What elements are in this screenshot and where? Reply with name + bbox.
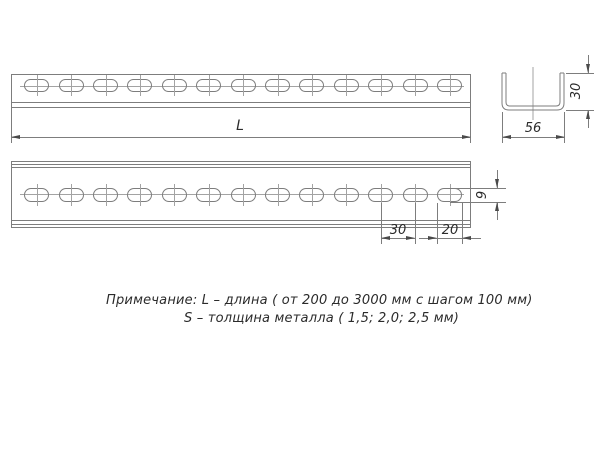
slot-pitch-label: 30 [386,224,410,238]
slot-vertical-centerline [140,75,141,96]
height-dim-arrow-top [586,64,590,73]
slot-vertical-centerline [312,184,313,206]
slot-vertical-centerline [381,75,382,96]
plan-view-bend-line-3 [12,220,470,221]
l-dim-label: L [228,119,252,133]
slot-vertical-centerline [450,75,451,96]
note-line1: Примечание: L – длина ( от 200 до 3000 м… [106,293,532,308]
slot-vertical-centerline [106,75,107,96]
slot-vertical-centerline [209,184,210,206]
slot-length-arrow-right [462,236,471,240]
slot-vertical-centerline [312,75,313,96]
slot-vertical-centerline [209,75,210,96]
width-dim-label: 56 [521,122,545,136]
slot-vertical-centerline [37,184,38,206]
width-dim-arrow-right [556,135,565,139]
l-dim-arrow-right [462,135,471,139]
side-view-bar [11,74,471,108]
plan-view-bend-line-2 [12,167,470,168]
plan-view-bar [11,161,471,228]
slot-vertical-centerline [174,184,175,206]
slot-vertical-centerline [140,184,141,206]
slot-vertical-centerline [243,75,244,96]
slot-vertical-centerline [37,75,38,96]
slot-vertical-centerline [71,75,72,96]
slot-vertical-centerline [174,75,175,96]
side-view-bend-line [12,102,470,103]
height-dim-ext-top [566,73,594,74]
cross-section-view [495,62,600,124]
note-line2: S – толщина металла ( 1,5; 2,0; 2,5 мм) [184,311,459,326]
slot-vertical-centerline [415,75,416,96]
height-dim-label: 30 [570,79,584,103]
slot-length-arrow-left [428,236,437,240]
slot-vertical-centerline [278,75,279,96]
slot-vertical-centerline [106,184,107,206]
height-dim-arrow-bottom [586,110,590,119]
slot-height-arrow-top [495,179,499,188]
l-dim-arrow-left [11,135,20,139]
technical-drawing-canvas: L 56 30 9 30 20 [0,0,600,450]
slot-vertical-centerline [243,184,244,206]
slot-vertical-centerline [346,184,347,206]
slot-height-arrow-bottom [495,202,499,211]
slot-vertical-centerline [71,184,72,206]
slot-vertical-centerline [278,184,279,206]
slot-pitch-ext-right [415,203,416,244]
plan-view-bend-line-1 [12,164,470,165]
l-dim-line [11,137,471,138]
slot-length-label: 20 [438,224,462,238]
slot-height-label: 9 [476,186,490,204]
slot-vertical-centerline [346,75,347,96]
width-dim-arrow-left [502,135,511,139]
